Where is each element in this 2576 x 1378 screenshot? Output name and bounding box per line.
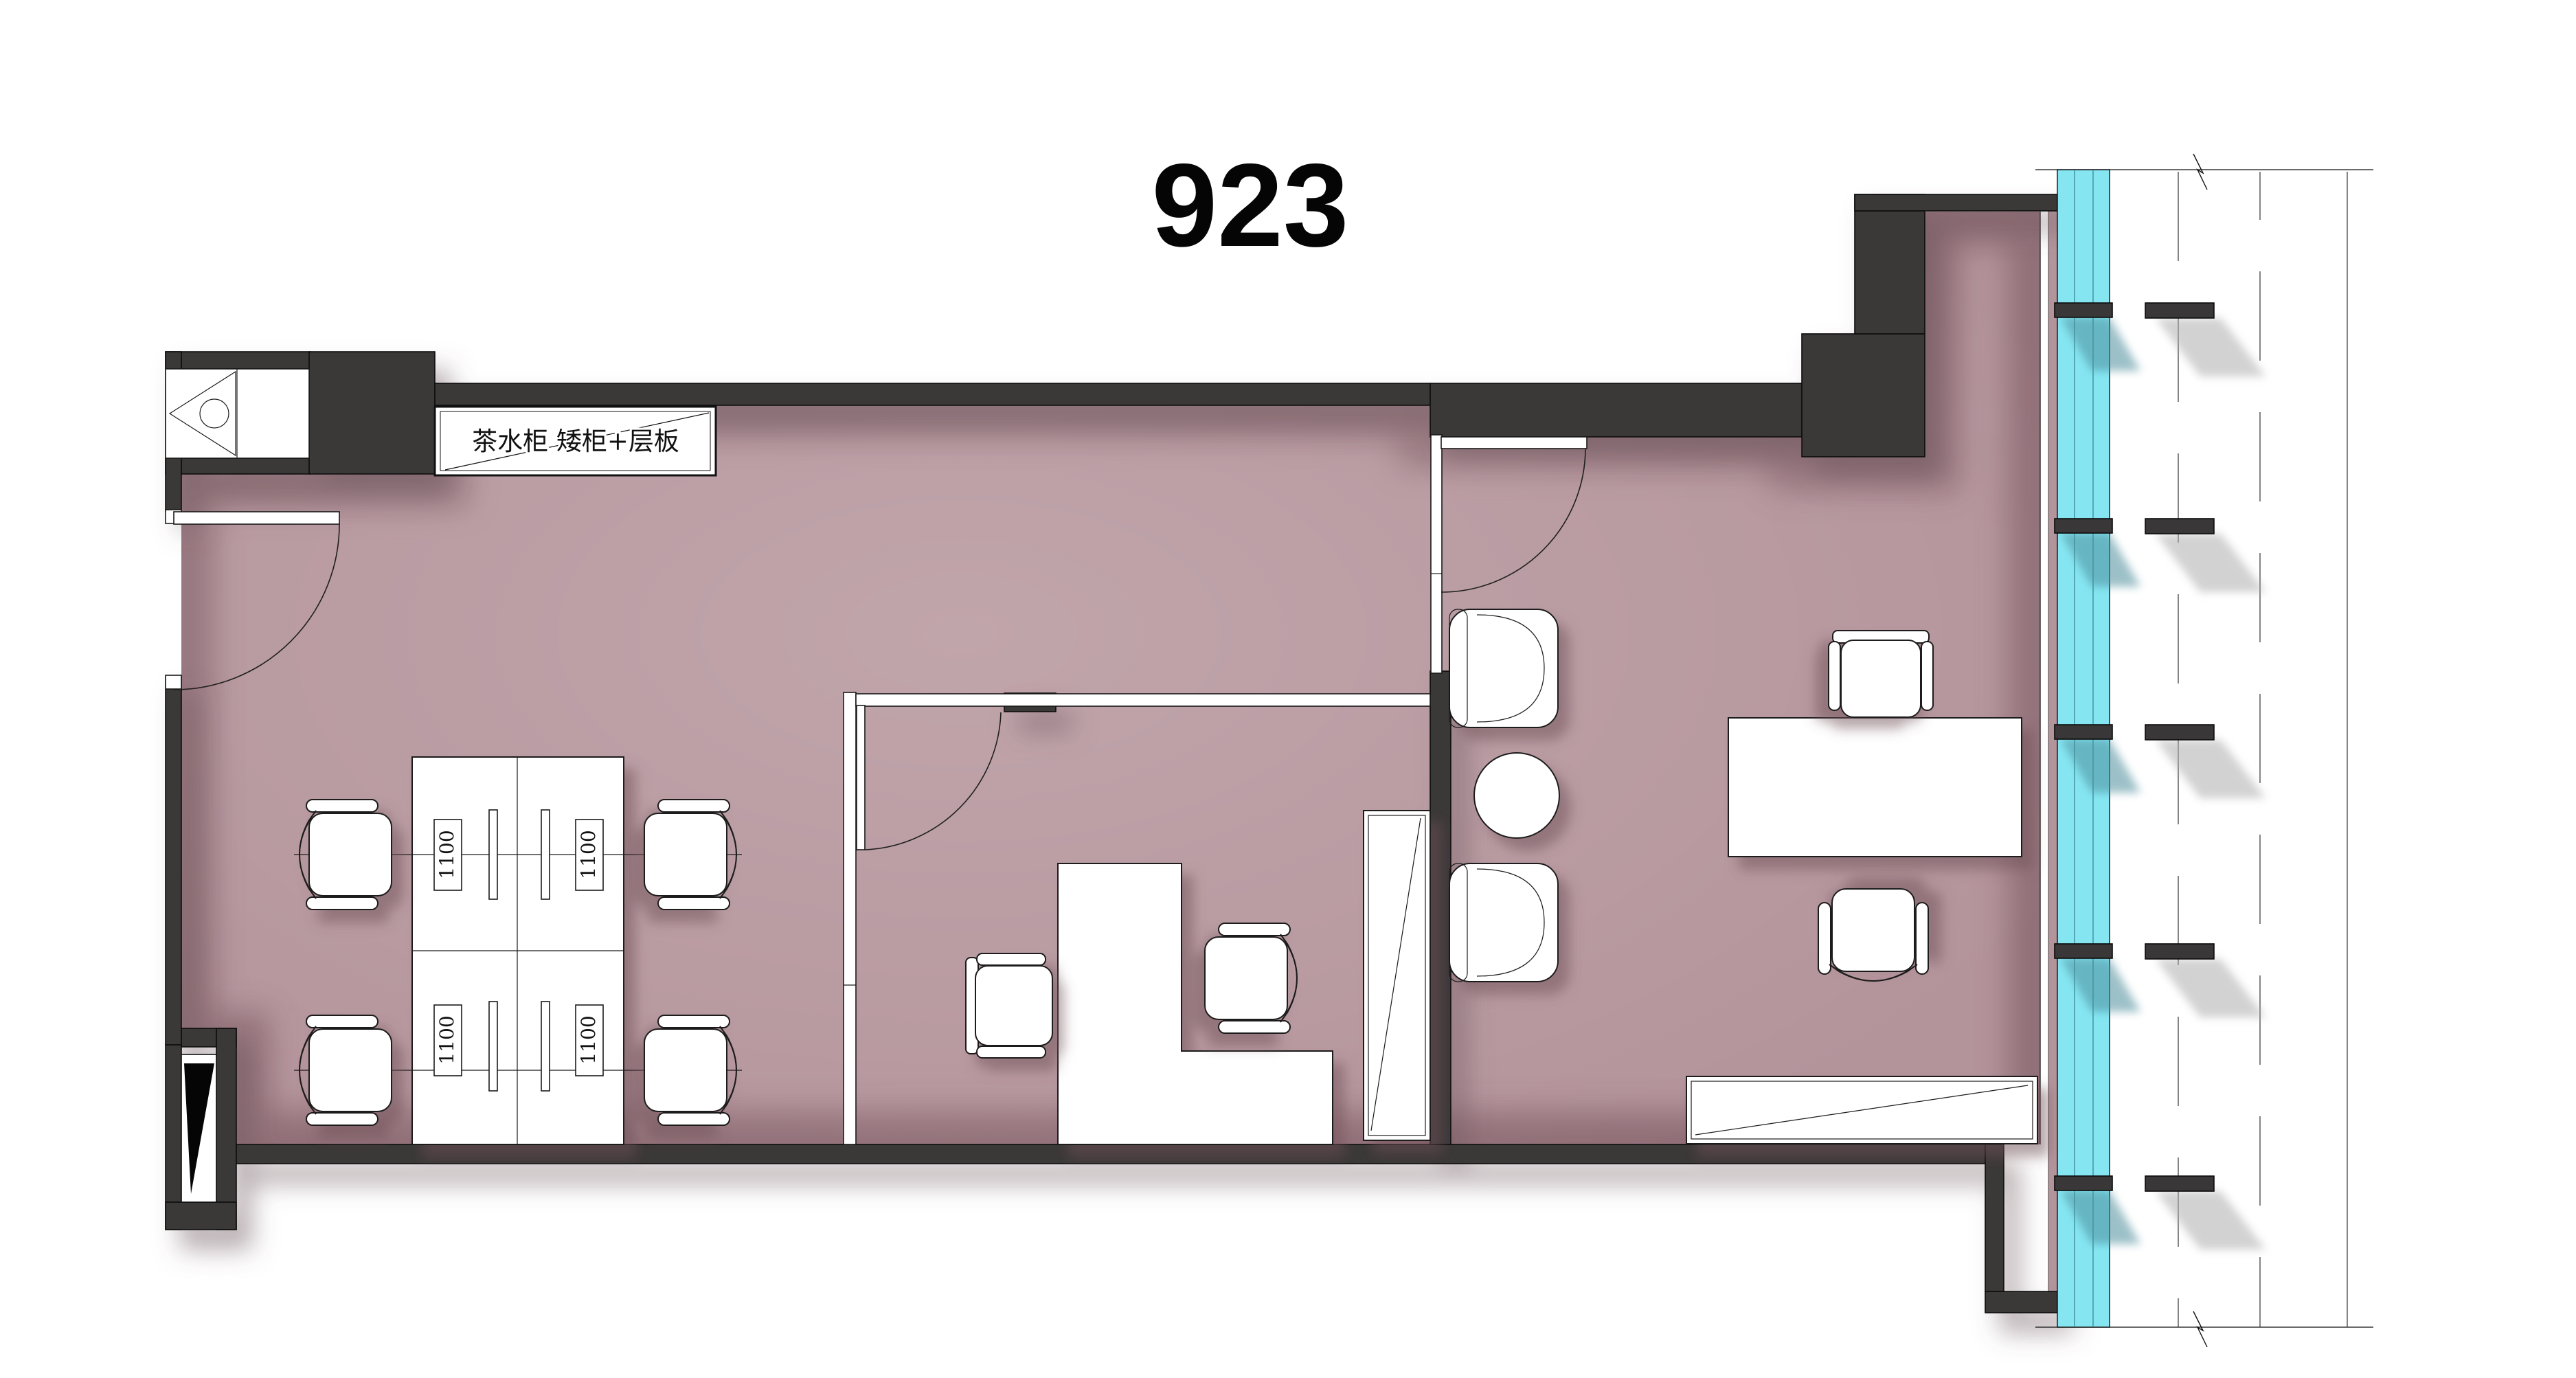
mullion-tick-outer (2145, 725, 2214, 740)
tall-cabinet (1364, 811, 1430, 1140)
mullion-tick-outer (2145, 519, 2214, 534)
unit-number-title: 923 (1152, 139, 1349, 271)
wall-southwest-strip (216, 1028, 236, 1230)
door-frame (166, 675, 181, 689)
round-side-table (1474, 753, 1559, 838)
break-symbol-bottom (2193, 1311, 2207, 1347)
mullion-tick (2055, 725, 2112, 739)
floorplan-drawing: 茶水柜 矮柜+层板 (0, 0, 2576, 1378)
monitor-slot (541, 810, 550, 899)
floor-sliver-behind-glazing (2048, 211, 2057, 1291)
wall-north-facade (1855, 194, 2057, 211)
wall-shaft-cap (166, 1202, 236, 1230)
guest-chair (966, 953, 1052, 1058)
partition-office-north (1431, 435, 1442, 673)
wall-sink-bottom-cap (166, 458, 310, 474)
wall-pier-upper (1855, 194, 1925, 334)
mullion-tick-outer (2145, 944, 2214, 959)
monitor-slot (489, 810, 497, 899)
guest-chair (1829, 631, 1933, 717)
credenza (1686, 1076, 2037, 1144)
wall-west-lower (166, 677, 181, 1045)
monitor-slot (541, 1002, 550, 1091)
wall-south (236, 1144, 1985, 1164)
mullion-tick (2055, 1176, 2112, 1190)
break-symbol-top (2193, 154, 2207, 190)
dim-label-text: 1100 (436, 1015, 458, 1064)
partition-meeting-north (856, 694, 1430, 706)
monitor-slot (489, 1002, 497, 1091)
lounge-chair (1449, 609, 1558, 727)
floorplan-page: 茶水柜 矮柜+层板 (0, 0, 2576, 1378)
wall-block-north-left (309, 352, 435, 474)
wall-partition-office (1430, 671, 1451, 1144)
facade (2035, 154, 2373, 1347)
lounge-chair (1449, 863, 1558, 982)
shaft (181, 1054, 216, 1202)
mullion-tick (2055, 944, 2112, 958)
cabinet-label-text: 茶水柜 矮柜+层板 (472, 427, 679, 456)
wall-southeast-cap (1985, 1291, 2057, 1313)
wall-southeast-step (1985, 1144, 2004, 1291)
dim-label-text: 1100 (577, 830, 600, 879)
office-desk (1728, 718, 2022, 857)
dim-label-text: 1100 (577, 1015, 600, 1064)
wall-sink-top-cap (166, 352, 310, 369)
wall-north-long (435, 383, 1430, 405)
mullion-tick (2055, 303, 2112, 317)
mullion-tick-outer (2145, 303, 2214, 318)
door-leaf (174, 512, 339, 524)
cabinet-label-box: 茶水柜 矮柜+层板 (435, 407, 716, 475)
door-leaf (857, 705, 865, 850)
wall-pier-lower (1802, 334, 1925, 457)
sink-counter (166, 369, 309, 458)
mullion-tick-outer (2145, 1176, 2214, 1191)
dim-label-text: 1100 (436, 830, 458, 879)
mullion-tick (2055, 519, 2112, 533)
partition-meeting-west (844, 692, 856, 1144)
wall-north-right (1430, 383, 1802, 437)
door-leaf (1441, 437, 1587, 449)
